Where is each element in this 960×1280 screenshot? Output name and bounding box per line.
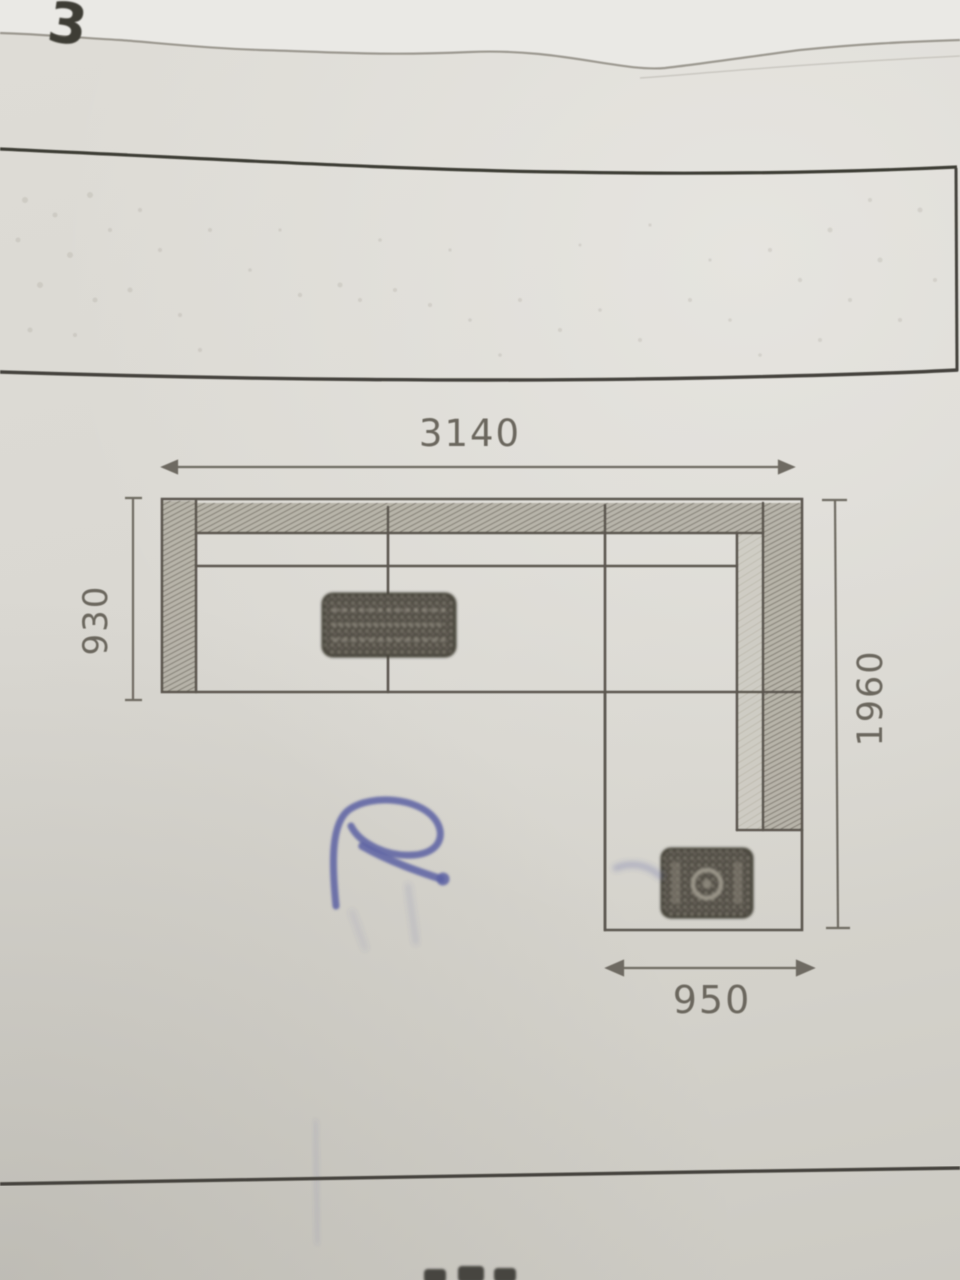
photographed-document: 3 3140 930 1960 950 bbox=[0, 0, 960, 1280]
sketch-layer bbox=[0, 0, 960, 1280]
dimension-top-width: 3140 bbox=[390, 414, 550, 455]
backrest-hatch bbox=[196, 503, 763, 533]
chaise-stamp-icon bbox=[662, 849, 752, 917]
sofa-plan-drawing bbox=[125, 461, 850, 975]
right-armrest-hatch bbox=[763, 503, 802, 830]
right-inner-band bbox=[737, 533, 763, 830]
form-bottom-rule bbox=[0, 1168, 960, 1184]
dimension-left-depth: 930 bbox=[78, 565, 118, 675]
bottom-edge-cutoff-text bbox=[424, 1266, 516, 1280]
dimension-right-length: 1960 bbox=[852, 636, 896, 760]
center-stamp-icon bbox=[323, 594, 455, 656]
left-armrest-hatch bbox=[162, 501, 196, 692]
form-header-band bbox=[0, 149, 958, 380]
dimension-chaise-width: 950 bbox=[642, 980, 782, 1022]
paper-speckles bbox=[16, 192, 938, 357]
top-paper-sheet bbox=[0, 0, 960, 78]
